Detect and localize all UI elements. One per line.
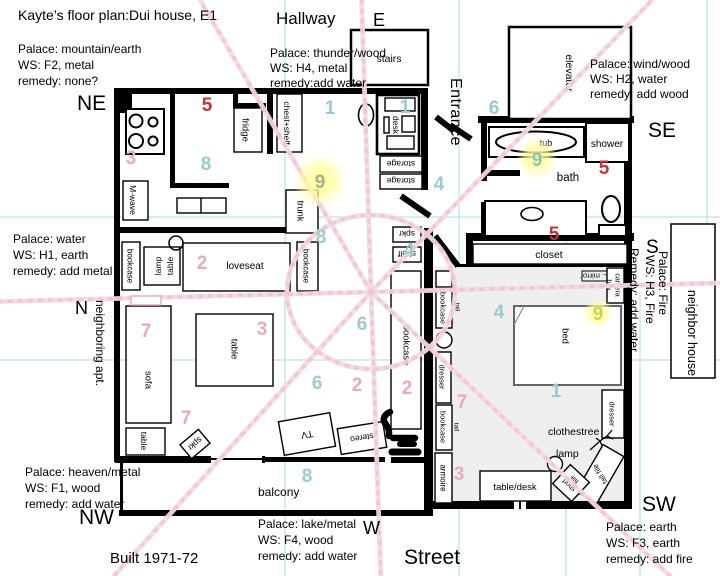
svg-text:remedy:add water: remedy:add water	[270, 76, 366, 90]
svg-text:WS: F1, wood: WS: F1, wood	[25, 481, 100, 495]
svg-text:5: 5	[202, 95, 213, 116]
svg-text:neighboring apt.: neighboring apt.	[93, 300, 107, 386]
svg-text:3: 3	[257, 319, 268, 340]
svg-text:dresser: dresser	[608, 401, 617, 427]
svg-text:table: table	[165, 257, 175, 276]
svg-text:5: 5	[549, 224, 560, 245]
svg-text:6: 6	[489, 98, 500, 119]
svg-text:shower: shower	[591, 139, 624, 150]
svg-text:balcony: balcony	[258, 485, 299, 499]
svg-text:NE: NE	[77, 92, 106, 115]
svg-text:3: 3	[126, 148, 137, 169]
svg-text:1: 1	[400, 97, 411, 118]
svg-text:2: 2	[402, 378, 413, 399]
svg-text:remedy: add metal: remedy: add metal	[13, 264, 112, 278]
svg-text:7: 7	[457, 392, 468, 413]
svg-text:table: table	[229, 339, 240, 360]
svg-text:remedy: add water: remedy: add water	[258, 549, 357, 563]
svg-text:table/desk: table/desk	[493, 482, 537, 493]
svg-text:bookcase: bookcase	[302, 249, 311, 284]
svg-text:Palace: heaven/metal: Palace: heaven/metal	[25, 465, 140, 479]
svg-text:Palace: wind/wood: Palace: wind/wood	[590, 57, 690, 71]
svg-text:closet: closet	[535, 249, 563, 261]
svg-text:bookcase: bookcase	[126, 249, 135, 284]
svg-text:armoire: armoire	[439, 464, 448, 492]
svg-text:storage: storage	[387, 176, 416, 186]
svg-text:lamp: lamp	[153, 257, 163, 276]
svg-text:WS: F3, earth: WS: F3, earth	[606, 536, 680, 550]
svg-text:WS: H3, Fire: WS: H3, Fire	[643, 255, 657, 324]
svg-text:remedy: none?: remedy: none?	[18, 74, 98, 88]
svg-text:6: 6	[357, 314, 368, 335]
svg-text:9: 9	[593, 304, 604, 325]
svg-text:sofa: sofa	[143, 371, 154, 390]
svg-text:tall: tall	[453, 423, 460, 432]
svg-text:Palace: Fire: Palace: Fire	[656, 251, 670, 315]
svg-text:neighbor house: neighbor house	[685, 290, 699, 376]
svg-text:Palace: thunder/wood: Palace: thunder/wood	[270, 46, 386, 60]
svg-text:WS: H4, metal: WS: H4, metal	[270, 61, 347, 75]
svg-text:8: 8	[316, 227, 327, 248]
svg-text:2: 2	[197, 253, 208, 274]
svg-text:S: S	[646, 237, 659, 258]
svg-text:4: 4	[404, 240, 415, 261]
svg-text:7: 7	[141, 321, 152, 342]
svg-text:E: E	[373, 10, 385, 30]
svg-text:3: 3	[454, 464, 465, 485]
svg-text:N: N	[75, 298, 88, 318]
svg-text:SE: SE	[648, 119, 676, 142]
svg-text:desk: desk	[391, 116, 401, 135]
svg-text:WS: H1, earth: WS: H1, earth	[13, 248, 88, 262]
svg-text:M-wave: M-wave	[128, 185, 138, 215]
svg-text:9: 9	[315, 172, 326, 193]
svg-text:clothestree: clothestree	[548, 426, 600, 438]
svg-text:6: 6	[312, 373, 323, 394]
svg-text:9: 9	[532, 150, 543, 171]
svg-text:4: 4	[434, 174, 445, 195]
svg-text:bed: bed	[560, 328, 571, 344]
svg-text:loveseat: loveseat	[226, 261, 263, 272]
svg-text:bookcase: bookcase	[439, 292, 448, 324]
svg-text:trunk: trunk	[295, 200, 306, 221]
svg-text:remedy: add fire: remedy: add fire	[606, 552, 693, 566]
svg-text:5: 5	[599, 158, 610, 179]
svg-text:SW: SW	[642, 493, 676, 516]
svg-text:table: table	[139, 432, 149, 451]
svg-text:fridge: fridge	[240, 118, 251, 142]
svg-text:WS: F4, wood: WS: F4, wood	[258, 533, 333, 547]
svg-text:1: 1	[551, 381, 562, 402]
svg-text:remedy: add wood: remedy: add wood	[590, 87, 689, 101]
svg-text:2: 2	[352, 375, 363, 396]
svg-text:Palace: water: Palace: water	[13, 232, 86, 246]
svg-text:dresser: dresser	[438, 364, 447, 390]
svg-text:Entrance: Entrance	[447, 78, 464, 146]
svg-text:8: 8	[302, 466, 313, 487]
svg-text:storage: storage	[387, 159, 416, 169]
svg-text:W: W	[363, 518, 380, 538]
svg-text:Palace: lake/metal: Palace: lake/metal	[258, 517, 356, 531]
svg-text:7: 7	[181, 408, 192, 429]
svg-text:bath: bath	[557, 172, 579, 184]
svg-text:4: 4	[494, 302, 505, 323]
svg-text:Palace: earth: Palace: earth	[606, 520, 677, 534]
svg-text:WS: F2, metal: WS: F2, metal	[18, 58, 94, 72]
svg-text:bookcase: bookcase	[439, 411, 448, 443]
svg-text:Remedy: add water: Remedy: add water	[627, 248, 641, 352]
svg-text:Built 1971-72: Built 1971-72	[110, 550, 198, 567]
svg-text:1: 1	[325, 98, 336, 119]
svg-text:←mirror: ←mirror	[580, 272, 608, 281]
svg-text:NW: NW	[79, 506, 114, 529]
svg-text:Street: Street	[404, 546, 460, 569]
svg-text:Hallway: Hallway	[276, 9, 336, 28]
svg-text:8: 8	[201, 154, 212, 175]
svg-text:WS: H2, water: WS: H2, water	[590, 72, 667, 86]
svg-text:Palace: mountain/earth: Palace: mountain/earth	[18, 42, 141, 56]
svg-text:Kayte’s floor plan:Dui house,: Kayte’s floor plan:Dui house, E1	[18, 7, 217, 23]
svg-text:spkr: spkr	[399, 229, 415, 239]
